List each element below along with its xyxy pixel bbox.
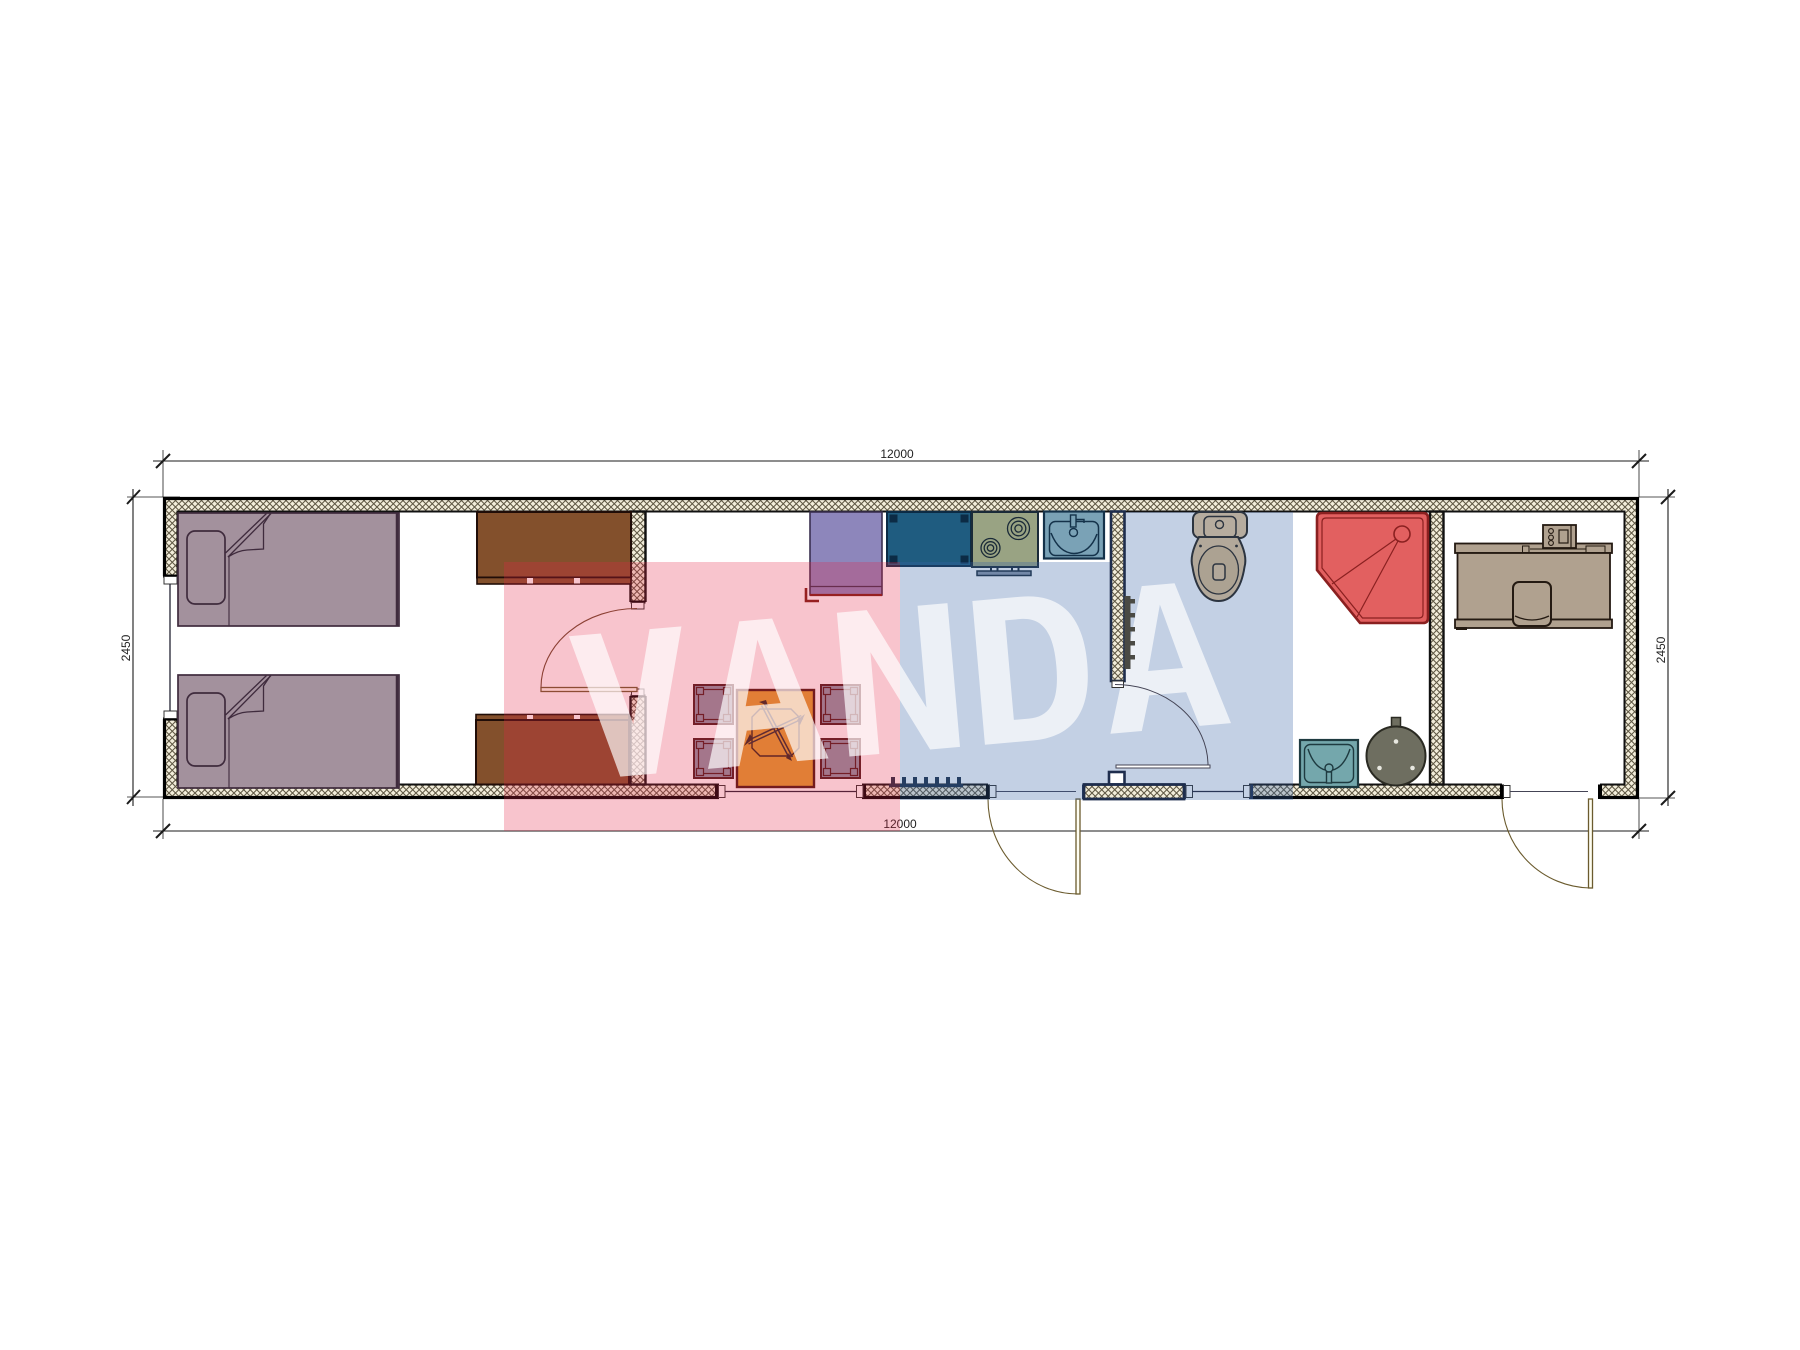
svg-text:2450: 2450 [119,634,133,661]
svg-text:2450: 2450 [1654,636,1668,663]
svg-text:12000: 12000 [880,447,914,461]
